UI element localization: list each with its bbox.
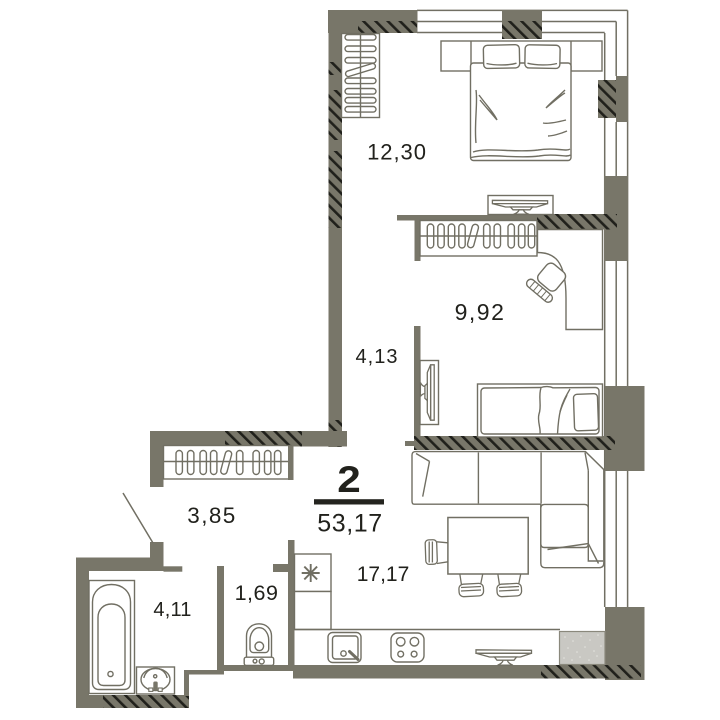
svg-text:4,11: 4,11	[153, 599, 191, 621]
svg-text:12,30: 12,30	[367, 140, 427, 165]
svg-text:53,17: 53,17	[317, 510, 383, 538]
svg-text:3,85: 3,85	[187, 503, 236, 528]
svg-text:17,17: 17,17	[357, 563, 410, 586]
svg-text:1,69: 1,69	[235, 581, 279, 605]
svg-text:2: 2	[337, 458, 361, 500]
svg-text:4,13: 4,13	[356, 346, 399, 368]
svg-text:9,92: 9,92	[455, 299, 506, 325]
